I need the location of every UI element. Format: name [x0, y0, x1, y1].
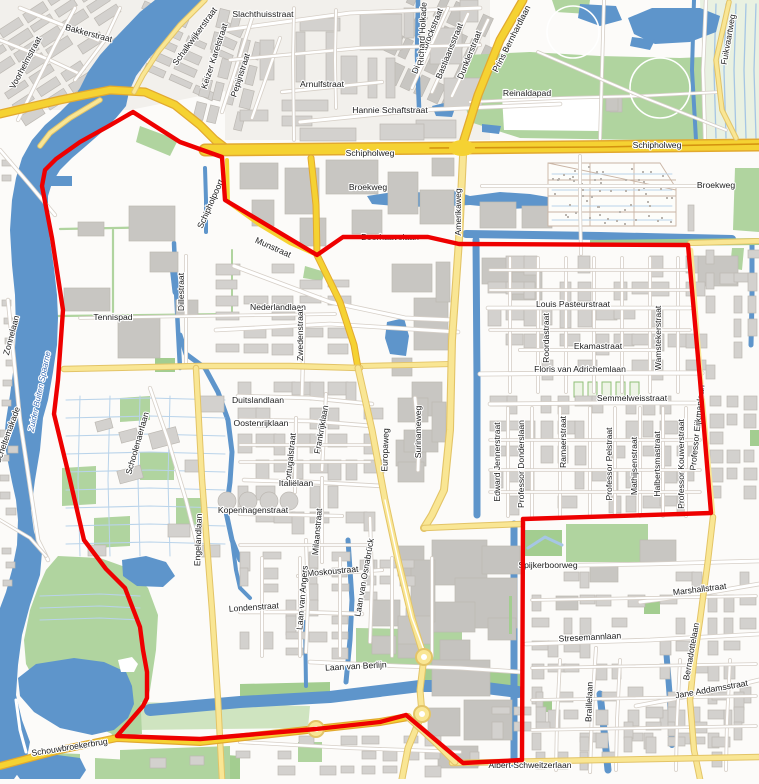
- svg-text:Spijkerboorweg: Spijkerboorweg: [518, 560, 577, 570]
- svg-text:Floris van Adrichemlaan: Floris van Adrichemlaan: [534, 364, 626, 374]
- svg-text:Wamstekerstraat: Wamstekerstraat: [653, 305, 663, 370]
- svg-text:Semmelweisstraat: Semmelweisstraat: [597, 393, 668, 403]
- svg-text:Ramaerstraat: Ramaerstraat: [558, 415, 568, 468]
- svg-text:Professor Kouwerstraat: Professor Kouwerstraat: [676, 418, 686, 508]
- svg-text:Hannie Schaftstraat: Hannie Schaftstraat: [352, 105, 428, 115]
- svg-text:Dillestraat: Dillestraat: [176, 272, 186, 311]
- svg-text:Louis Pasteurstraat: Louis Pasteurstraat: [536, 299, 611, 309]
- svg-text:Broekweg: Broekweg: [697, 180, 735, 190]
- svg-text:Engelandlaan: Engelandlaan: [192, 513, 204, 566]
- svg-text:Mathijsenstraat: Mathijsenstraat: [629, 436, 639, 495]
- svg-text:Italiëlaan: Italiëlaan: [279, 478, 314, 488]
- svg-text:Europaweg: Europaweg: [379, 428, 391, 472]
- svg-text:Duitslandlaan: Duitslandlaan: [232, 395, 284, 405]
- svg-text:Edward Jennerstraat: Edward Jennerstraat: [492, 422, 502, 502]
- svg-text:Surinameweg: Surinameweg: [413, 406, 423, 459]
- svg-text:Braillelaan: Braillelaan: [583, 681, 594, 722]
- svg-text:Roordastraat: Roordastraat: [541, 313, 551, 363]
- svg-text:Schipholweg: Schipholweg: [346, 148, 395, 158]
- svg-text:Tennispad: Tennispad: [93, 312, 132, 322]
- svg-text:Professor Donderslaan: Professor Donderslaan: [516, 420, 526, 508]
- svg-text:Schipholweg: Schipholweg: [633, 140, 682, 150]
- svg-text:Zwedenstraat: Zwedenstraat: [295, 308, 305, 361]
- svg-text:Amerikaweg: Amerikaweg: [453, 188, 463, 236]
- svg-text:Slachthuisstraat: Slachthuisstraat: [232, 9, 294, 19]
- svg-text:Ekamastraat: Ekamastraat: [574, 341, 623, 351]
- svg-text:Oostenrijklaan: Oostenrijklaan: [234, 418, 289, 428]
- svg-text:Reinaldapad: Reinaldapad: [503, 88, 551, 98]
- svg-text:Arnulfstraat: Arnulfstraat: [300, 79, 345, 89]
- svg-text:Kopenhagenstraat: Kopenhagenstraat: [218, 505, 289, 515]
- svg-text:Broekweg: Broekweg: [349, 182, 387, 192]
- svg-text:Professor Pelstraat: Professor Pelstraat: [604, 427, 614, 501]
- svg-text:Halbertsmastraat: Halbertsmastraat: [652, 431, 662, 497]
